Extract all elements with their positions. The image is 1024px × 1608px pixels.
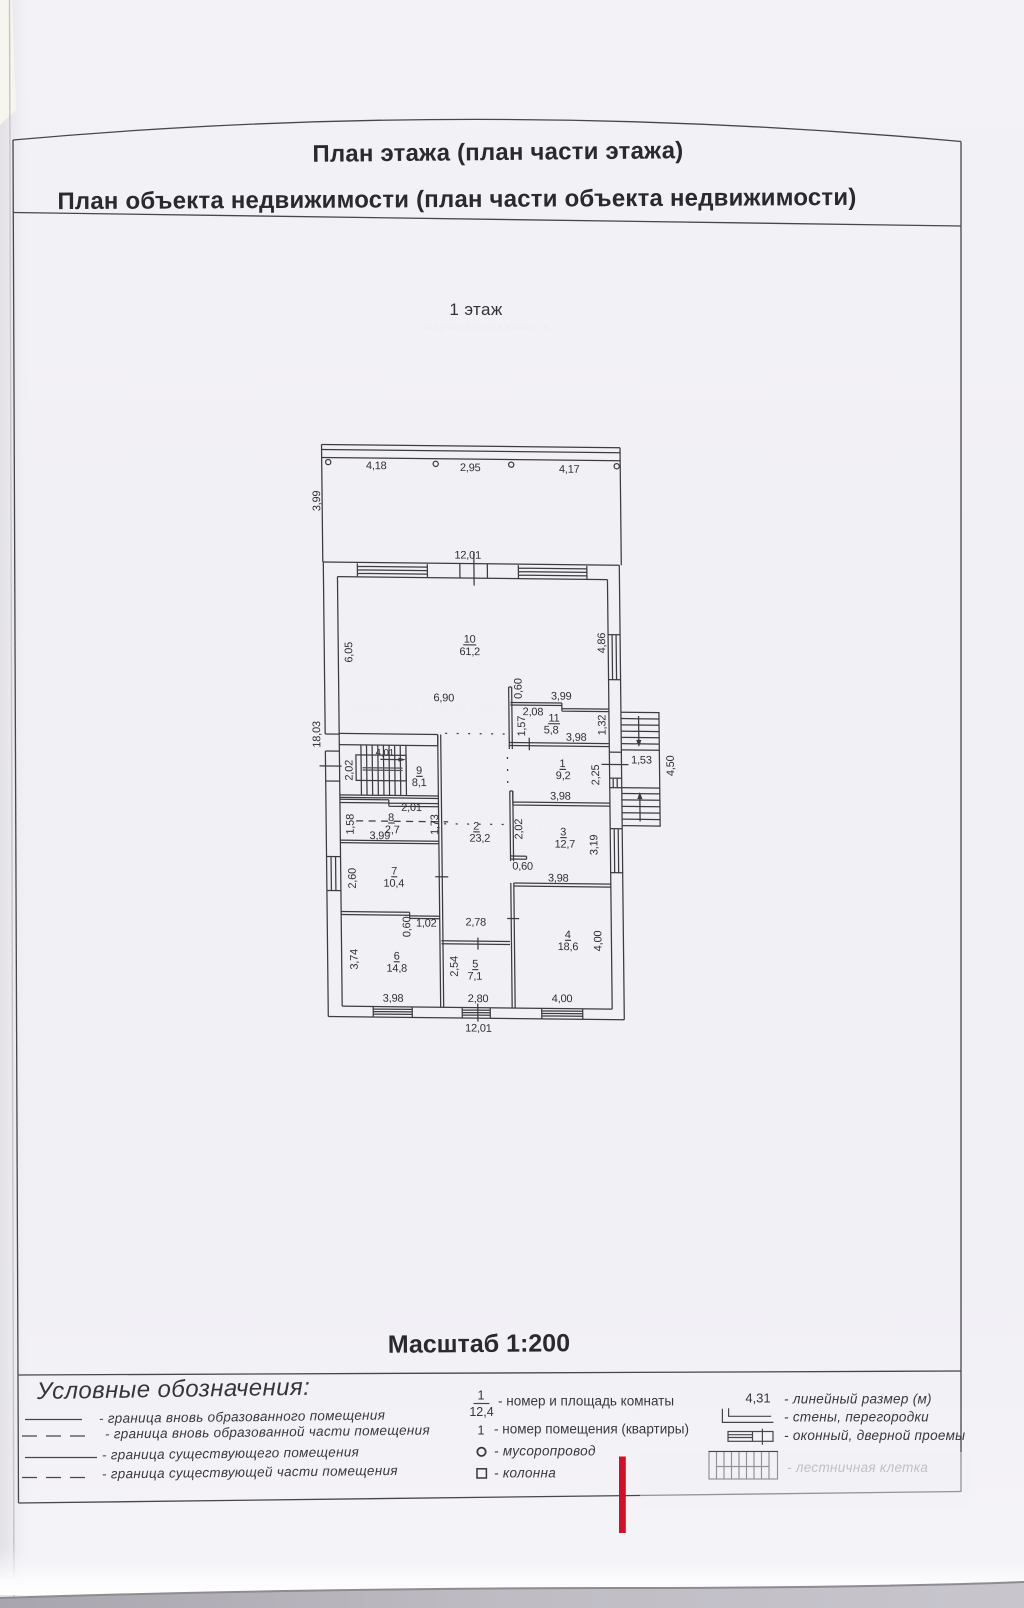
svg-text:0,60: 0,60 [401, 916, 413, 937]
svg-text:4: 4 [565, 929, 571, 941]
svg-text:1,32: 1,32 [596, 715, 608, 736]
svg-text:4,31: 4,31 [745, 1391, 770, 1406]
svg-text:3,98: 3,98 [566, 732, 587, 744]
svg-text:1: 1 [559, 758, 565, 770]
svg-text:1 этаж: 1 этаж [449, 300, 503, 319]
svg-text:12,7: 12,7 [555, 839, 576, 851]
svg-text:4,00: 4,00 [592, 931, 604, 952]
svg-text:- мусоропровод: - мусоропровод [494, 1444, 596, 1459]
svg-text:4,17: 4,17 [559, 464, 580, 476]
svg-text:6,05: 6,05 [343, 642, 355, 663]
svg-text:2,01: 2,01 [401, 802, 422, 814]
svg-text:4,01: 4,01 [376, 748, 395, 759]
svg-text:7: 7 [391, 866, 397, 878]
svg-text:Условные обозначения:: Условные обозначения: [36, 1374, 311, 1405]
svg-text:Масштаб 1:200: Масштаб 1:200 [388, 1329, 571, 1359]
svg-text:3,98: 3,98 [383, 993, 404, 1005]
svg-text:2,02: 2,02 [513, 819, 525, 840]
svg-text:3,19: 3,19 [588, 834, 600, 855]
svg-text:5: 5 [472, 958, 478, 970]
svg-text:3: 3 [560, 826, 566, 838]
svg-text:- линейный размер (м): - линейный размер (м) [784, 1392, 932, 1407]
svg-text:4,50: 4,50 [665, 755, 677, 776]
svg-text:- стены, перегородки: - стены, перегородки [784, 1410, 929, 1425]
svg-text:План этажа (план части этажа): План этажа (план части этажа) [312, 137, 683, 168]
svg-text:12,01: 12,01 [454, 549, 481, 561]
svg-text:- оконный, дверной проемы: - оконный, дверной проемы [784, 1428, 965, 1443]
svg-text:1,73: 1,73 [429, 814, 441, 835]
svg-text:1,57: 1,57 [516, 716, 528, 737]
svg-text:- колонна: - колонна [494, 1466, 556, 1481]
svg-text:3,99: 3,99 [551, 690, 572, 702]
svg-text:- номер и площадь комнаты: - номер и площадь комнаты [498, 1394, 674, 1409]
svg-text:6,90: 6,90 [433, 692, 454, 704]
svg-text:23,2: 23,2 [469, 833, 490, 845]
svg-text:4,18: 4,18 [366, 460, 387, 472]
svg-text:0,60: 0,60 [513, 678, 525, 699]
svg-text:3,99: 3,99 [369, 830, 390, 842]
svg-text:3,98: 3,98 [548, 872, 569, 884]
svg-text:2,95: 2,95 [460, 462, 481, 474]
svg-text:18,03: 18,03 [311, 721, 323, 748]
svg-text:61,2: 61,2 [459, 646, 480, 658]
svg-text:9: 9 [416, 765, 422, 777]
svg-text:широкаянедвижимость: широкаянедвижимость [424, 322, 550, 333]
svg-text:4,86: 4,86 [596, 633, 608, 654]
svg-text:6: 6 [394, 951, 400, 963]
svg-text:10: 10 [464, 634, 476, 646]
svg-text:3,74: 3,74 [349, 949, 361, 970]
svg-text:4,00: 4,00 [552, 993, 573, 1005]
svg-text:9,2: 9,2 [556, 770, 571, 782]
svg-text:3,99: 3,99 [311, 490, 323, 511]
svg-text:1: 1 [478, 1424, 485, 1438]
svg-text:11: 11 [548, 712, 559, 724]
svg-text:- граница существующего помеще: - граница существующего помещения [102, 1444, 359, 1462]
svg-text:2,78: 2,78 [465, 917, 486, 929]
svg-text:- номер помещения (квартиры): - номер помещения (квартиры) [494, 1422, 689, 1437]
svg-text:2,60: 2,60 [347, 868, 359, 889]
svg-text:7,1: 7,1 [467, 971, 482, 983]
svg-text:18,6: 18,6 [558, 941, 579, 953]
svg-text:1,02: 1,02 [416, 917, 437, 929]
svg-text:3,98: 3,98 [550, 790, 571, 802]
svg-text:1: 1 [478, 1389, 485, 1403]
svg-text:8: 8 [388, 812, 394, 824]
svg-text:10,4: 10,4 [383, 878, 404, 890]
svg-text:2,02: 2,02 [343, 760, 355, 781]
svg-text:План объекта недвижимости (пла: План объекта недвижимости (план части об… [57, 184, 856, 215]
svg-text:0,60: 0,60 [512, 861, 533, 873]
svg-text:1,58: 1,58 [345, 814, 357, 835]
svg-text:12,4: 12,4 [469, 1405, 493, 1419]
svg-text:2,54: 2,54 [449, 956, 461, 977]
svg-text:2,25: 2,25 [590, 765, 602, 786]
svg-text:2,80: 2,80 [468, 993, 489, 1005]
svg-text:8,1: 8,1 [412, 777, 427, 789]
svg-text:5,8: 5,8 [544, 724, 559, 736]
svg-text:12,01: 12,01 [465, 1023, 492, 1035]
svg-text:2: 2 [473, 821, 479, 833]
svg-text:14,8: 14,8 [386, 963, 407, 975]
svg-text:1,53: 1,53 [631, 754, 652, 766]
